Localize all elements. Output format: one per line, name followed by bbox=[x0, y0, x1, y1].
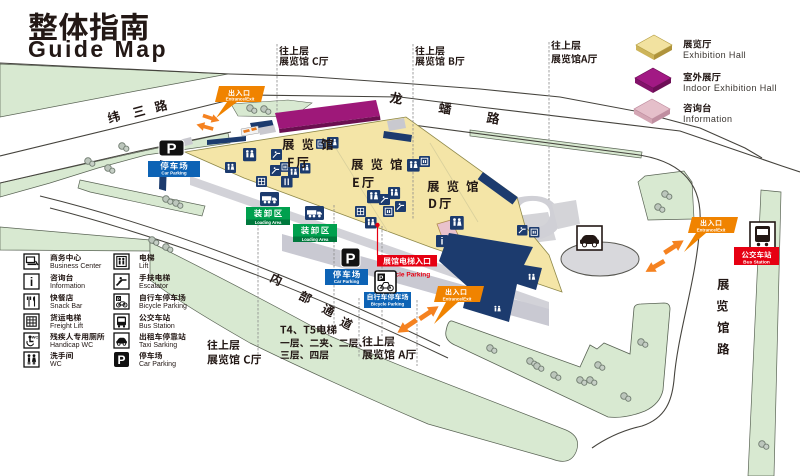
svg-text:Exhibition Hall: Exhibition Hall bbox=[683, 50, 746, 60]
svg-text:Information: Information bbox=[683, 114, 732, 124]
svg-text:Lift: Lift bbox=[139, 263, 148, 270]
svg-text:Handicap WC: Handicap WC bbox=[50, 342, 93, 349]
svg-text:P: P bbox=[345, 251, 355, 268]
svg-text:WC: WC bbox=[32, 334, 39, 339]
svg-text:Business Center: Business Center bbox=[50, 263, 102, 270]
svg-text:Loading Area: Loading Area bbox=[302, 237, 329, 242]
svg-text:Snack Bar: Snack Bar bbox=[50, 303, 83, 310]
svg-text:P: P bbox=[117, 353, 125, 367]
svg-text:P: P bbox=[166, 141, 176, 158]
svg-text:Indoor Exhibition Hall: Indoor Exhibition Hall bbox=[683, 83, 777, 93]
svg-text:Entrance/Exit: Entrance/Exit bbox=[226, 97, 255, 102]
svg-text:Freight Lift: Freight Lift bbox=[50, 323, 83, 330]
svg-text:Bicycle Parking: Bicycle Parking bbox=[139, 303, 187, 310]
svg-text:Information: Information bbox=[50, 283, 85, 290]
svg-text:Car Parking: Car Parking bbox=[334, 279, 360, 284]
svg-text:Bus Station: Bus Station bbox=[139, 323, 175, 330]
svg-text:i: i bbox=[30, 275, 33, 289]
svg-text:P: P bbox=[117, 296, 120, 301]
svg-text:Entrance/Exit: Entrance/Exit bbox=[697, 228, 726, 233]
svg-text:Car Parking: Car Parking bbox=[161, 171, 187, 176]
svg-text:P: P bbox=[379, 275, 384, 282]
svg-text:Bus Station: Bus Station bbox=[743, 260, 770, 266]
svg-text:Taxi Sarking: Taxi Sarking bbox=[139, 342, 177, 349]
svg-text:Loading Area: Loading Area bbox=[255, 220, 282, 225]
svg-text:Entrance/Exit: Entrance/Exit bbox=[443, 297, 472, 302]
svg-text:Bicycle Parking: Bicycle Parking bbox=[371, 302, 405, 307]
svg-text:Car Parking: Car Parking bbox=[139, 361, 176, 368]
svg-text:WC: WC bbox=[50, 361, 62, 368]
svg-text:Escalator: Escalator bbox=[139, 283, 169, 290]
